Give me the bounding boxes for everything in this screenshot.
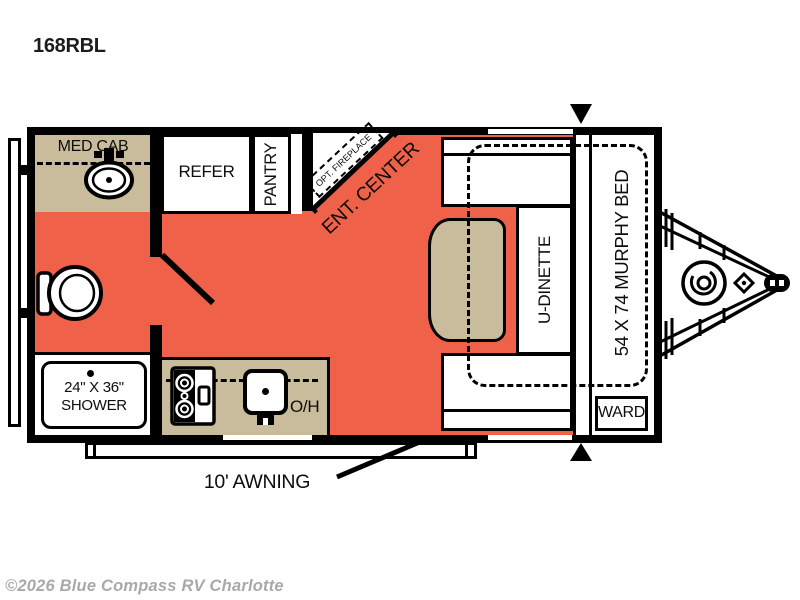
toilet-icon bbox=[36, 262, 106, 324]
shower-label-line2: SHOWER bbox=[43, 397, 145, 414]
window-bottom-kitchen bbox=[223, 435, 312, 440]
bath-wall-lower bbox=[150, 325, 162, 435]
awning-arm bbox=[330, 434, 430, 482]
shower-label-line1: 24" X 36" bbox=[43, 379, 145, 396]
kitchen-sink-drain bbox=[262, 388, 269, 395]
watermark: ©2026 Blue Compass RV Charlotte bbox=[5, 577, 284, 596]
lav-sink-icon bbox=[78, 147, 136, 201]
shower-drain bbox=[87, 370, 94, 377]
model-number: 168RBL bbox=[33, 35, 106, 58]
door-marker-top bbox=[570, 104, 592, 124]
awning-label: 10' AWNING bbox=[177, 471, 337, 494]
awning-bar-tick-left bbox=[93, 442, 96, 459]
stove-icon bbox=[170, 366, 216, 426]
window-top bbox=[488, 129, 573, 134]
window-bottom-bed bbox=[488, 435, 572, 440]
hitch-assembly bbox=[658, 195, 798, 375]
refer-label: REFER bbox=[161, 162, 252, 182]
rear-bumper bbox=[8, 138, 21, 427]
door-marker-bottom bbox=[570, 443, 592, 461]
floorplan-page: 168RBL MED CAB 24" X 36" SHOWER REFER PA bbox=[0, 0, 800, 600]
bath-door bbox=[158, 251, 222, 313]
murphy-bed-label: 54 X 74 MURPHY BED bbox=[611, 133, 633, 393]
awning-bar-tick-right bbox=[465, 442, 468, 459]
overhead-label: O/H bbox=[290, 397, 319, 417]
pantry-label: PANTRY bbox=[262, 137, 281, 212]
kitchen-sink-faucet-notch bbox=[263, 418, 268, 425]
ward-label: WARD bbox=[595, 404, 648, 422]
